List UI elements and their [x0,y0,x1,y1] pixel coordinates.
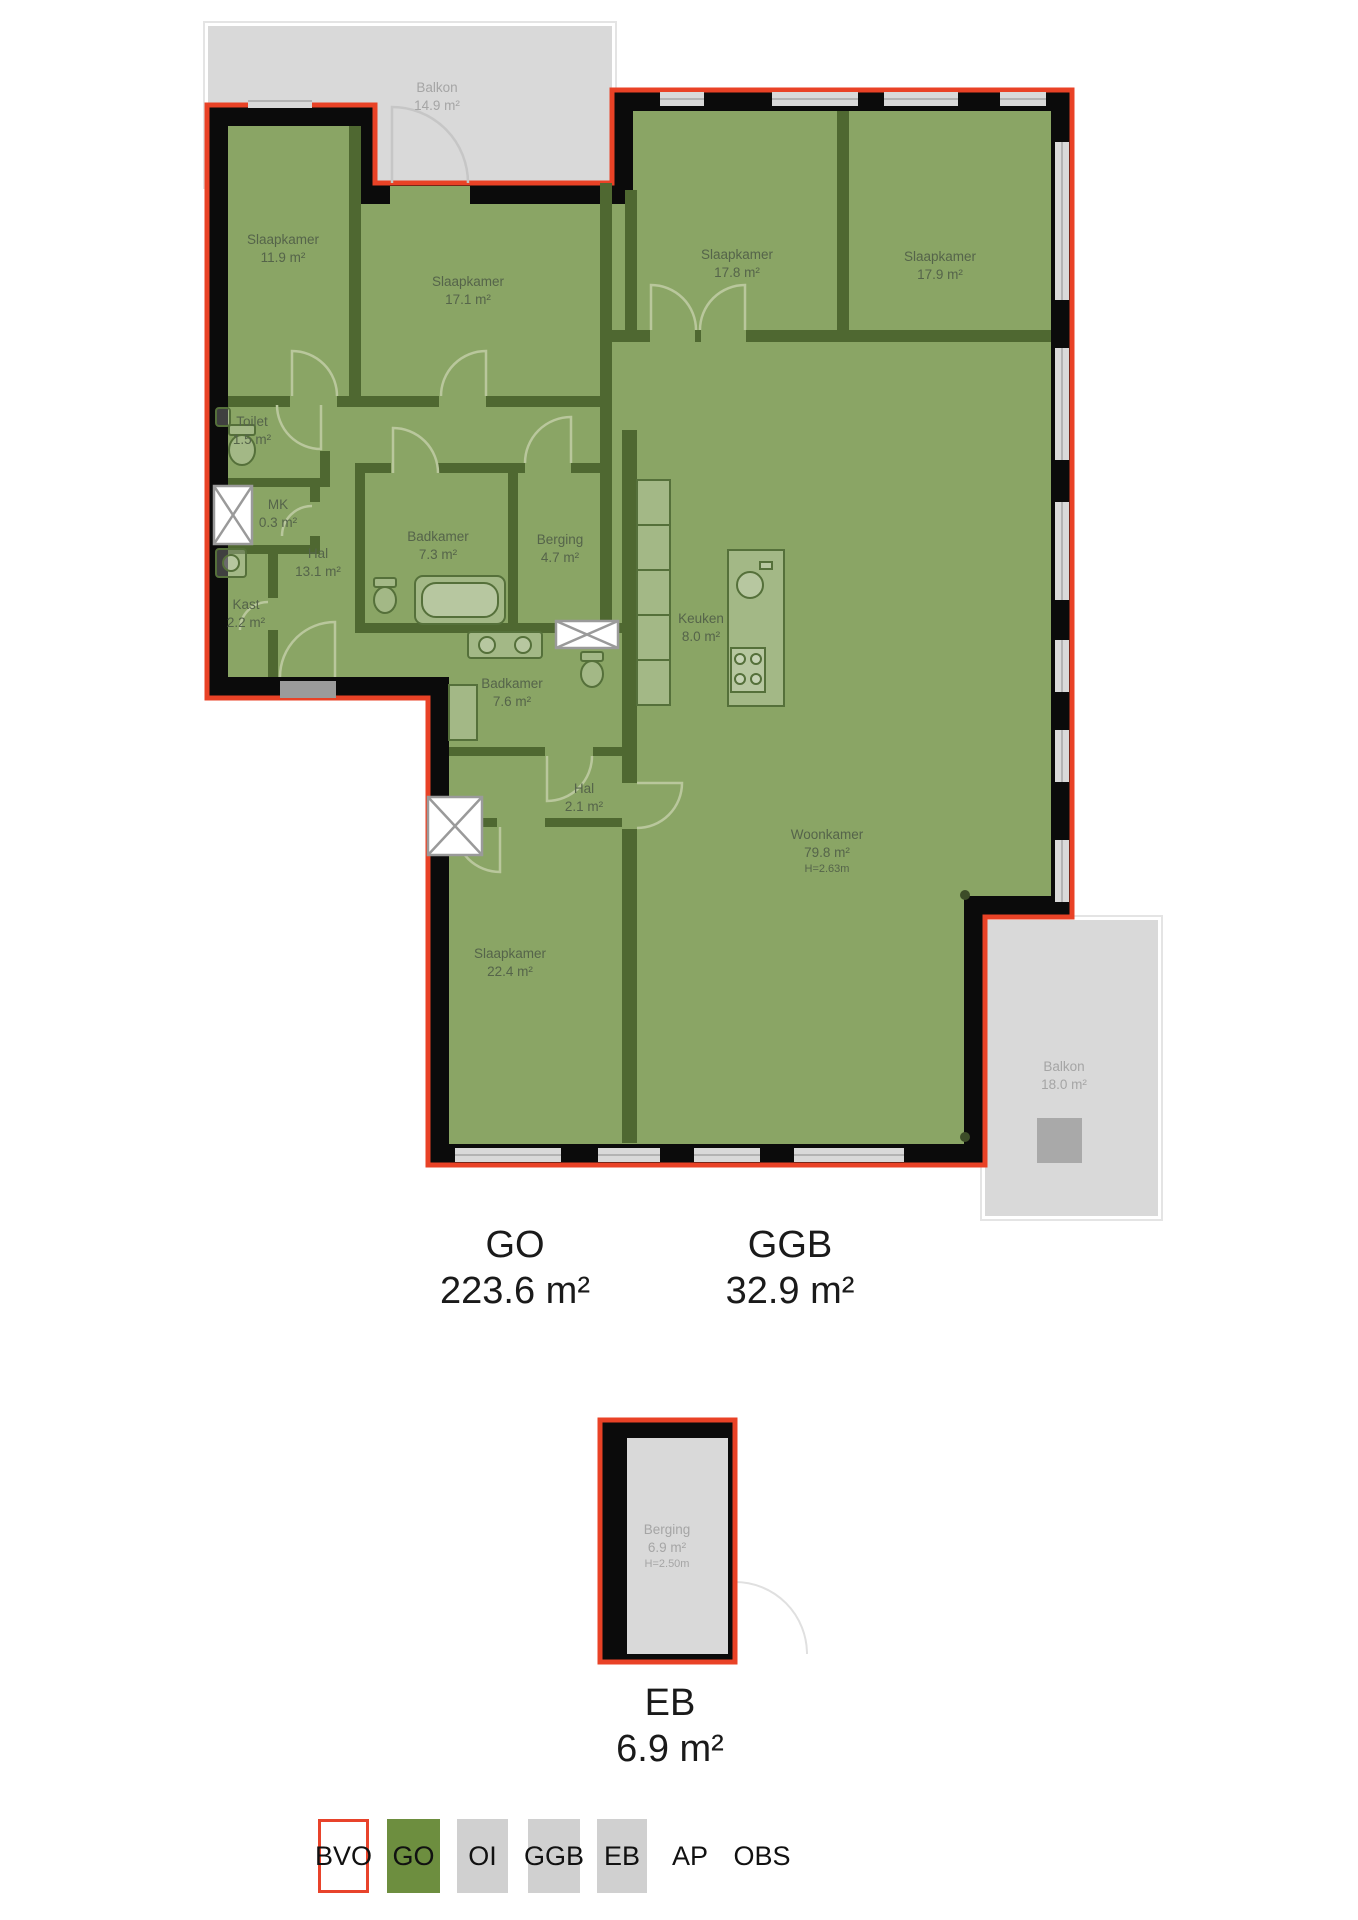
summary-go-code: GO [440,1222,590,1268]
room-label-slaapkamer-3: Slaapkamer 17.8 m² [701,246,773,282]
room-label-balkon-bottom: Balkon 18.0 m² [1041,1058,1087,1094]
floorplan-page: Balkon 14.9 m² Slaapkamer 11.9 m² Slaapk… [0,0,1358,1920]
room-label-slaapkamer-2: Slaapkamer 17.1 m² [432,273,504,309]
summary-ggb-code: GGB [726,1222,855,1268]
washing-machine-icon [216,549,246,577]
toilet-icon [374,578,396,613]
washbasin-icon [216,408,230,426]
eb-unit [600,1420,807,1662]
summary-ggb-area: 32.9 m² [726,1268,855,1314]
room-label-slaapkamer-4: Slaapkamer 17.9 m² [904,248,976,284]
floorplan-drawing [0,0,1358,1920]
bathtub-icon [415,576,505,624]
room-label-balkon-top: Balkon 14.9 m² [414,79,460,115]
summary-eb-area: 6.9 m² [616,1726,724,1772]
summary-go: GO 223.6 m² [440,1222,590,1314]
shaft-icon [428,797,482,855]
legend-item-go: GO [387,1819,440,1893]
room-label-keuken: Keuken 8.0 m² [678,610,724,646]
legend-item-ggb: GGB [528,1819,580,1893]
eb-door-arc [735,1582,807,1654]
room-label-mk: MK 0.3 m² [259,496,297,532]
entry-door-opening [280,681,336,698]
room-label-hal-1: Hal 13.1 m² [295,545,341,581]
shaft-icon [556,621,618,648]
toilet-icon [581,652,603,687]
kitchen-island-icon [728,550,784,706]
balcony-fixture [1037,1118,1082,1163]
legend-item-oi: OI [457,1819,508,1893]
double-washbasin-icon [468,632,542,658]
shower-icon [449,685,477,740]
room-label-slaapkamer-1: Slaapkamer 11.9 m² [247,231,319,267]
room-label-badkamer-2: Badkamer 7.6 m² [481,675,543,711]
kitchen-counter-icon [637,480,670,705]
legend-item-obs: OBS [728,1819,796,1893]
room-label-slaapkamer-5: Slaapkamer 22.4 m² [474,945,546,981]
room-label-hal-2: Hal 2.1 m² [565,780,603,816]
room-label-berging: Berging 4.7 m² [537,531,584,567]
sink-icon [737,572,763,598]
column-dot [960,890,970,900]
shaft-icon [214,486,252,544]
room-label-kast: Kast 2.2 m² [227,596,265,632]
room-label-toilet: Toilet 1.5 m² [233,413,271,449]
stove-icon [731,648,765,692]
summary-go-area: 223.6 m² [440,1268,590,1314]
room-label-badkamer-1: Badkamer 7.3 m² [407,528,469,564]
balcony-door-opening [390,186,470,204]
legend-item-ap: AP [662,1819,718,1893]
summary-ggb: GGB 32.9 m² [726,1222,855,1314]
room-label-woonkamer: Woonkamer 79.8 m² H=2.63m [791,826,864,876]
legend-item-eb: EB [597,1819,647,1893]
room-label-eb-berging: Berging 6.9 m² H=2.50m [644,1521,691,1571]
column-dot [960,1132,970,1142]
summary-eb-code: EB [616,1680,724,1726]
summary-eb: EB 6.9 m² [616,1680,724,1772]
legend-item-bvo: BVO [318,1819,369,1893]
